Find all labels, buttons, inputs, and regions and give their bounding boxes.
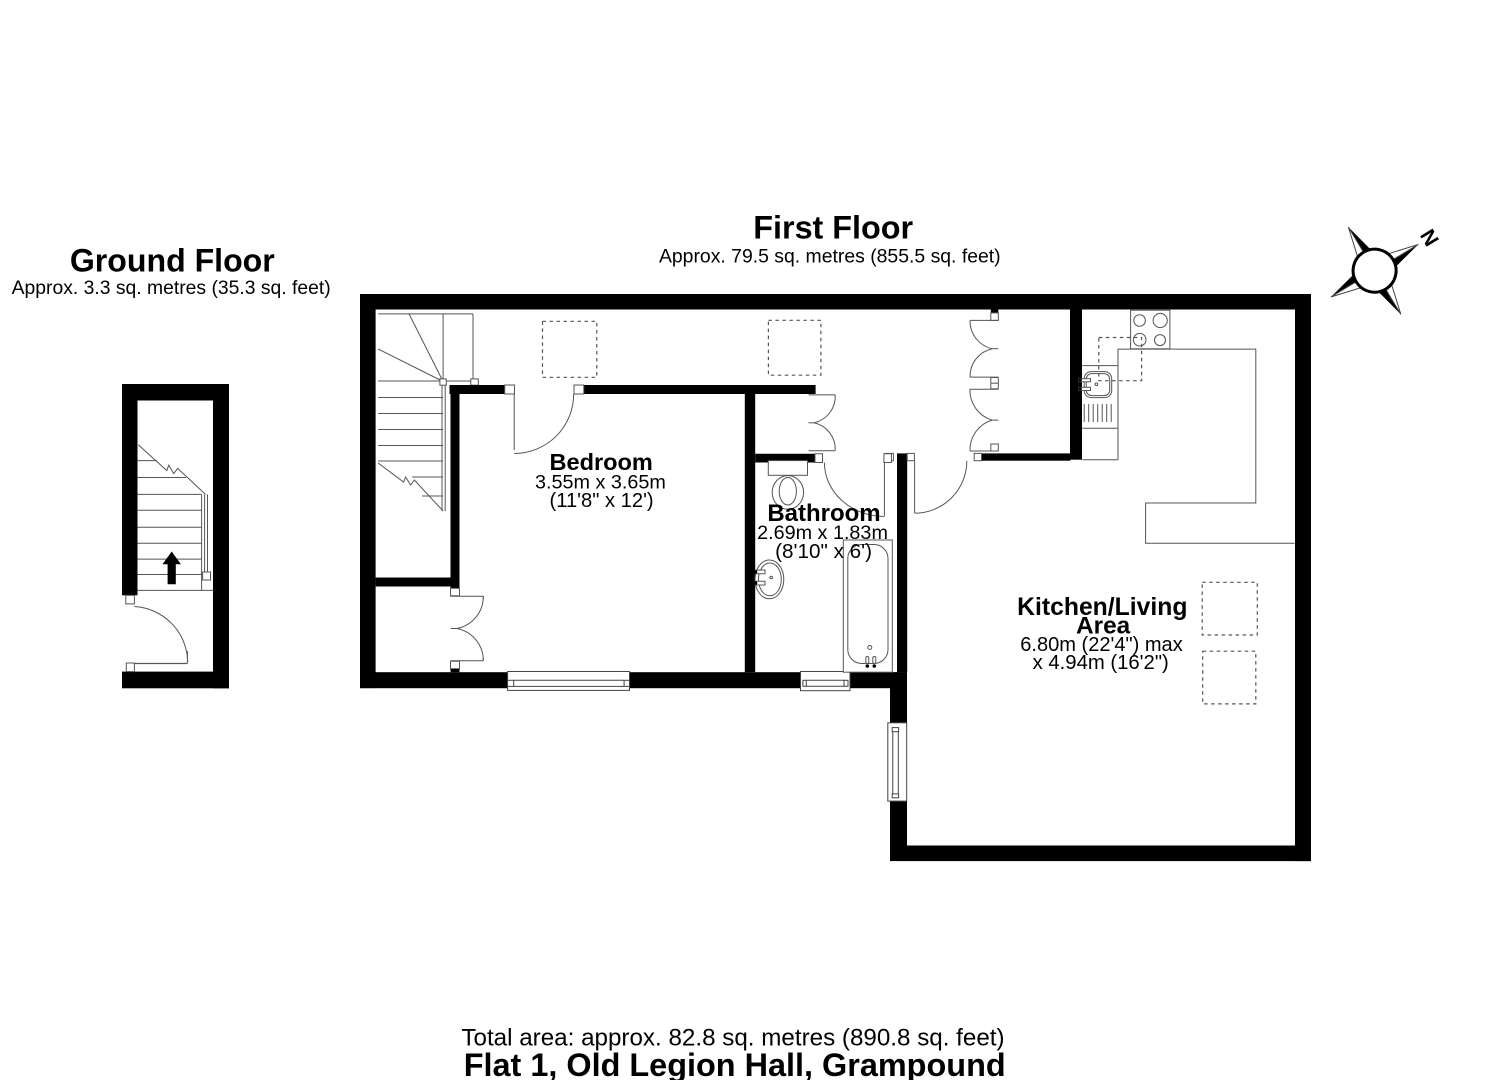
svg-text:(11'8" x 12'): (11'8" x 12') xyxy=(550,490,654,512)
svg-text:Flat 1, Old Legion Hall, Gramp: Flat 1, Old Legion Hall, Grampound xyxy=(464,1047,1006,1080)
svg-text:x 4.94m (16'2"): x 4.94m (16'2") xyxy=(1033,652,1169,674)
svg-text:First Floor: First Floor xyxy=(753,210,913,246)
svg-text:Approx. 79.5 sq. metres (855.5: Approx. 79.5 sq. metres (855.5 sq. feet) xyxy=(659,245,1001,267)
svg-text:Ground Floor: Ground Floor xyxy=(70,243,275,279)
svg-text:Approx. 3.3 sq. metres (35.3 s: Approx. 3.3 sq. metres (35.3 sq. feet) xyxy=(12,278,331,299)
svg-text:(8'10" x 6'): (8'10" x 6') xyxy=(775,540,872,563)
